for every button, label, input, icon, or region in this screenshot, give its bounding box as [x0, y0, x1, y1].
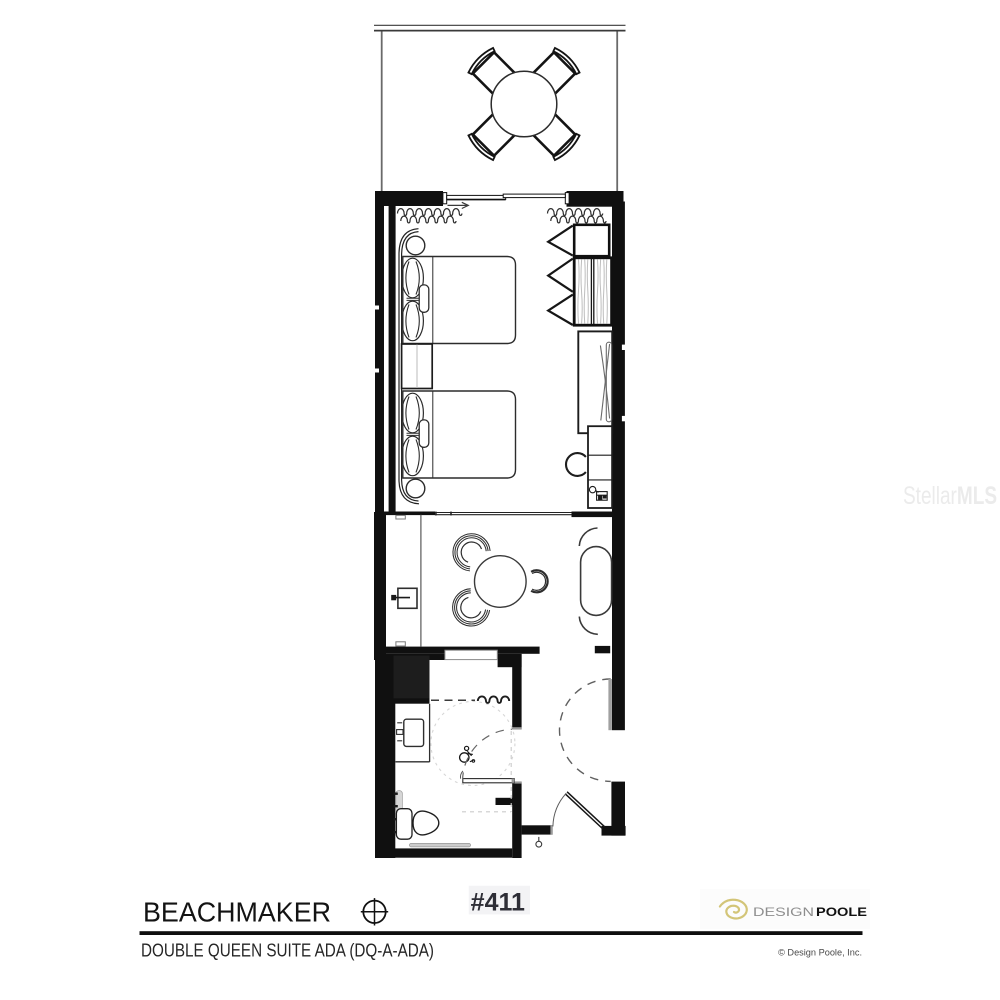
svg-text:DOUBLE QUEEN SUITE ADA (DQ-A-A: DOUBLE QUEEN SUITE ADA (DQ-A-ADA)	[141, 941, 434, 961]
svg-text:StellarMLS: StellarMLS	[903, 482, 997, 510]
svg-text:POOLE: POOLE	[816, 907, 867, 919]
svg-text:DESIGN: DESIGN	[753, 907, 814, 919]
svg-text:© Design Poole, Inc.: © Design Poole, Inc.	[778, 948, 862, 958]
svg-text:BEACHMAKER: BEACHMAKER	[143, 897, 331, 928]
svg-text:#411: #411	[471, 889, 525, 917]
